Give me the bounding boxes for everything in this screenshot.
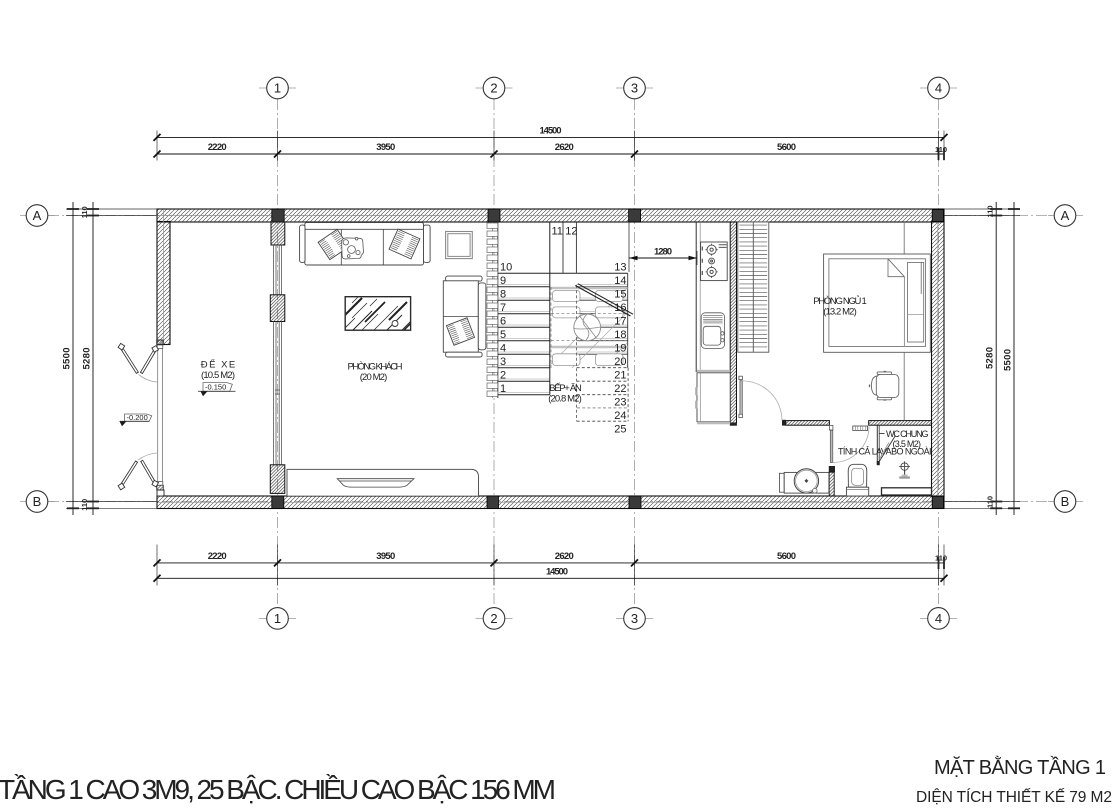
svg-text:15: 15 [614,289,626,301]
svg-text:2: 2 [490,611,497,626]
svg-text:2220: 2220 [208,551,227,562]
svg-text:4: 4 [935,611,942,626]
svg-text:WC CHUNG: WC CHUNG [886,429,929,439]
svg-text:3: 3 [500,356,506,368]
svg-text:A: A [1061,208,1070,223]
svg-text:5600: 5600 [777,551,796,562]
svg-text:5280: 5280 [985,347,996,369]
svg-text:(20.8 M2): (20.8 M2) [548,394,582,405]
svg-text:4: 4 [500,343,506,355]
svg-text:25: 25 [614,424,626,436]
svg-text:(10.5 M2): (10.5 M2) [201,370,235,381]
svg-text:11: 11 [552,226,563,238]
svg-text:3950: 3950 [376,142,395,153]
svg-text:110: 110 [935,145,947,154]
svg-text:5500: 5500 [62,348,73,370]
svg-text:1280: 1280 [654,247,672,258]
svg-text:23: 23 [614,397,626,409]
svg-text:13: 13 [614,262,626,274]
svg-text:B: B [1061,494,1070,509]
svg-text:TẦNG 1 CAO 3M9, 25 BẬC. CHIỀU: TẦNG 1 CAO 3M9, 25 BẬC. CHIỀU CAO BẬC 15… [0,774,556,805]
svg-text:BẾP+ ĂN: BẾP+ ĂN [549,383,582,394]
svg-text:22: 22 [614,383,626,395]
svg-text:10: 10 [500,262,512,274]
svg-text:14: 14 [614,275,626,287]
svg-text:2: 2 [500,370,506,382]
svg-text:2220: 2220 [208,142,227,153]
svg-text:(13.2 M2): (13.2 M2) [823,307,857,318]
svg-text:110: 110 [986,206,995,218]
svg-text:18: 18 [614,329,626,341]
svg-text:14500: 14500 [540,126,562,137]
svg-text:3: 3 [631,611,638,626]
svg-text:DIỆN TÍCH THIẾT KẾ 79 M2: DIỆN TÍCH THIẾT KẾ 79 M2 [916,789,1112,806]
svg-text:TÍNH CẢ LAVABO NGOÀI: TÍNH CẢ LAVABO NGOÀI [838,446,932,457]
svg-text:5280: 5280 [82,348,93,370]
svg-text:20: 20 [614,356,626,368]
svg-text:110: 110 [80,206,89,218]
svg-text:2: 2 [490,81,497,96]
svg-text:110: 110 [935,554,947,563]
svg-text:5600: 5600 [777,142,796,153]
svg-text:21: 21 [614,370,626,382]
svg-text:6: 6 [500,316,506,328]
svg-text:2620: 2620 [555,142,574,153]
svg-text:24: 24 [614,410,626,422]
svg-text:2620: 2620 [555,551,574,562]
svg-text:PHÒNG NGỦ 1: PHÒNG NGỦ 1 [813,295,867,307]
svg-text:-0.200: -0.200 [127,413,148,422]
svg-text:7: 7 [500,302,506,314]
svg-text:A: A [33,208,42,223]
svg-text:3: 3 [631,81,638,96]
svg-text:-0.150: -0.150 [205,383,226,392]
svg-text:17: 17 [614,316,626,328]
svg-text:1: 1 [274,81,281,96]
svg-text:B: B [33,494,42,509]
svg-text:12: 12 [565,226,577,238]
svg-text:5: 5 [500,329,506,341]
svg-text:(20 M2): (20 M2) [360,372,388,383]
svg-text:4: 4 [935,81,942,96]
svg-text:8: 8 [500,289,506,301]
svg-text:3950: 3950 [376,551,395,562]
svg-text:16: 16 [614,302,626,314]
svg-text:110: 110 [80,499,89,511]
svg-text:5500: 5500 [1002,349,1013,371]
svg-text:1: 1 [274,611,281,626]
svg-text:9: 9 [500,275,506,287]
svg-text:19: 19 [614,343,626,355]
svg-text:PHÒNG KHÁCH: PHÒNG KHÁCH [348,362,403,373]
svg-text:1: 1 [500,383,506,395]
svg-text:14500: 14500 [546,567,568,578]
svg-text:MẶT BẰNG TẦNG 1: MẶT BẰNG TẦNG 1 [934,755,1106,779]
svg-text:ĐỂ XE: ĐỂ XE [201,359,236,371]
svg-text:110: 110 [986,496,995,508]
